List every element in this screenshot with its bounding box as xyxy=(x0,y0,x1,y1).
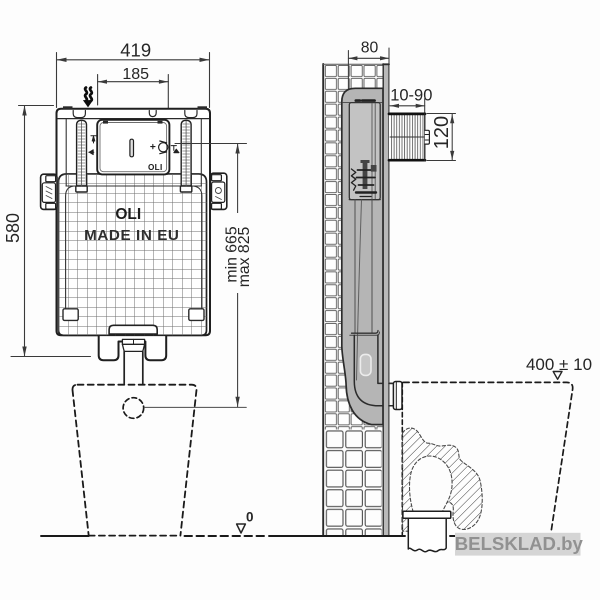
svg-text:120: 120 xyxy=(431,116,453,149)
svg-text:max 825: max 825 xyxy=(236,226,253,287)
svg-text:BELSKLAD.by: BELSKLAD.by xyxy=(455,533,584,554)
svg-text:185: 185 xyxy=(122,66,149,83)
svg-text:419: 419 xyxy=(120,40,151,61)
svg-text:OLI: OLI xyxy=(148,163,163,172)
svg-text:80: 80 xyxy=(361,40,379,57)
svg-text:MADE IN EU: MADE IN EU xyxy=(84,227,179,244)
svg-text:10-90: 10-90 xyxy=(390,86,432,104)
svg-text:OLI: OLI xyxy=(115,206,141,223)
svg-text:0: 0 xyxy=(246,510,254,525)
svg-text:580: 580 xyxy=(3,213,23,243)
